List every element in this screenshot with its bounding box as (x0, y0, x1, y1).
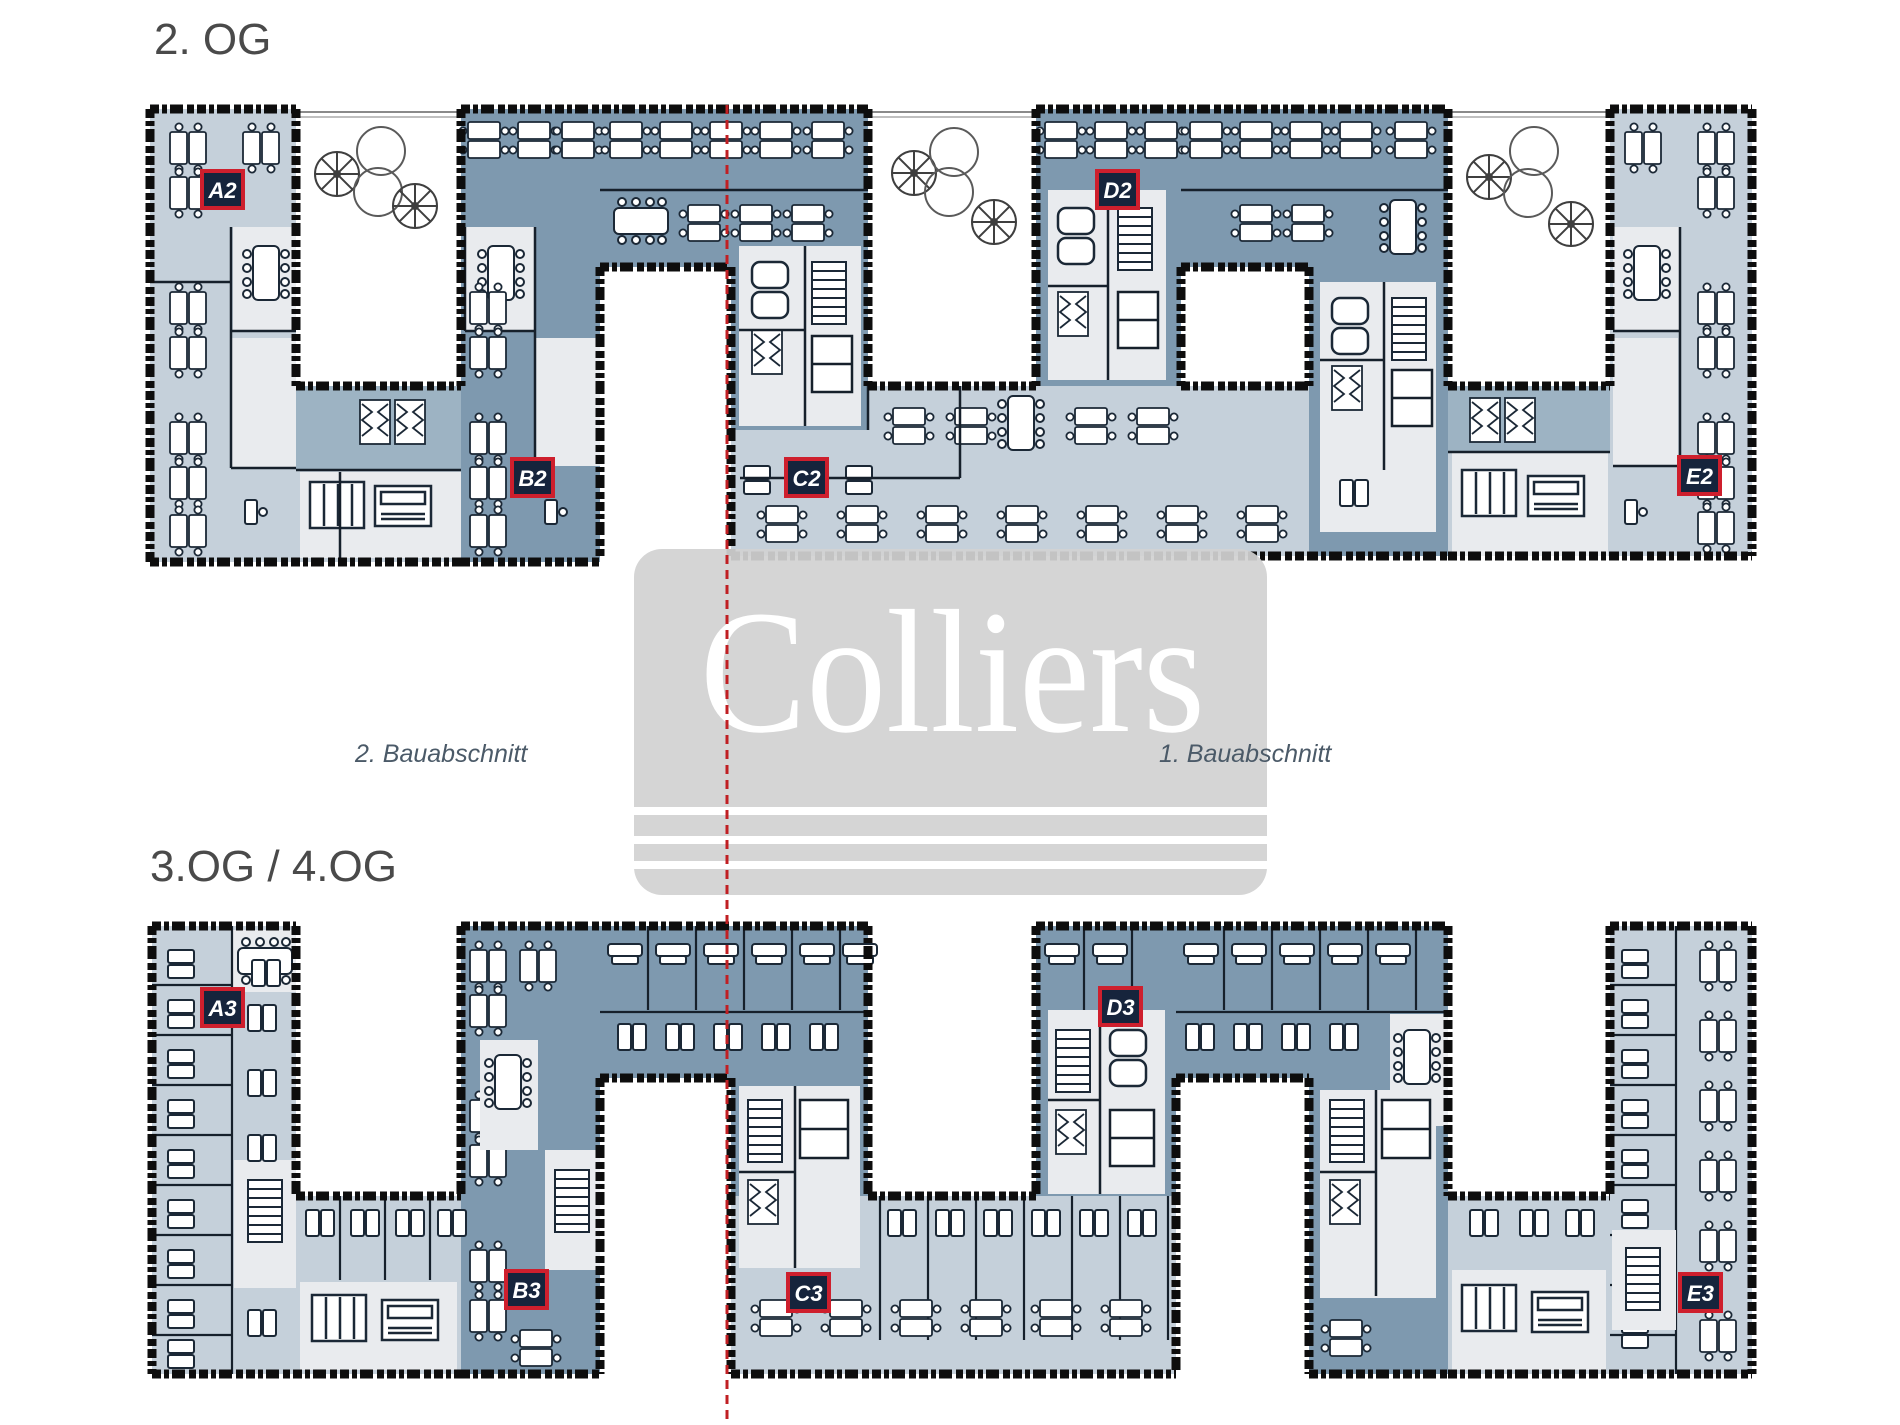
svg-text:3.OG / 4.OG: 3.OG / 4.OG (150, 842, 397, 891)
svg-text:A3: A3 (207, 996, 236, 1021)
svg-text:D3: D3 (1106, 995, 1134, 1020)
svg-text:E3: E3 (1687, 1281, 1714, 1306)
svg-text:C2: C2 (792, 466, 821, 491)
svg-text:B2: B2 (518, 466, 547, 491)
svg-text:2. Bauabschnitt: 2. Bauabschnitt (354, 740, 528, 768)
svg-text:B3: B3 (512, 1278, 540, 1303)
svg-text:E2: E2 (1686, 464, 1714, 489)
svg-text:Colliers: Colliers (700, 575, 1205, 770)
svg-text:C3: C3 (794, 1281, 822, 1306)
svg-text:D2: D2 (1103, 178, 1132, 203)
svg-text:2. OG: 2. OG (154, 15, 271, 64)
svg-text:1. Bauabschnitt: 1. Bauabschnitt (1159, 740, 1332, 768)
svg-text:A2: A2 (207, 178, 237, 203)
